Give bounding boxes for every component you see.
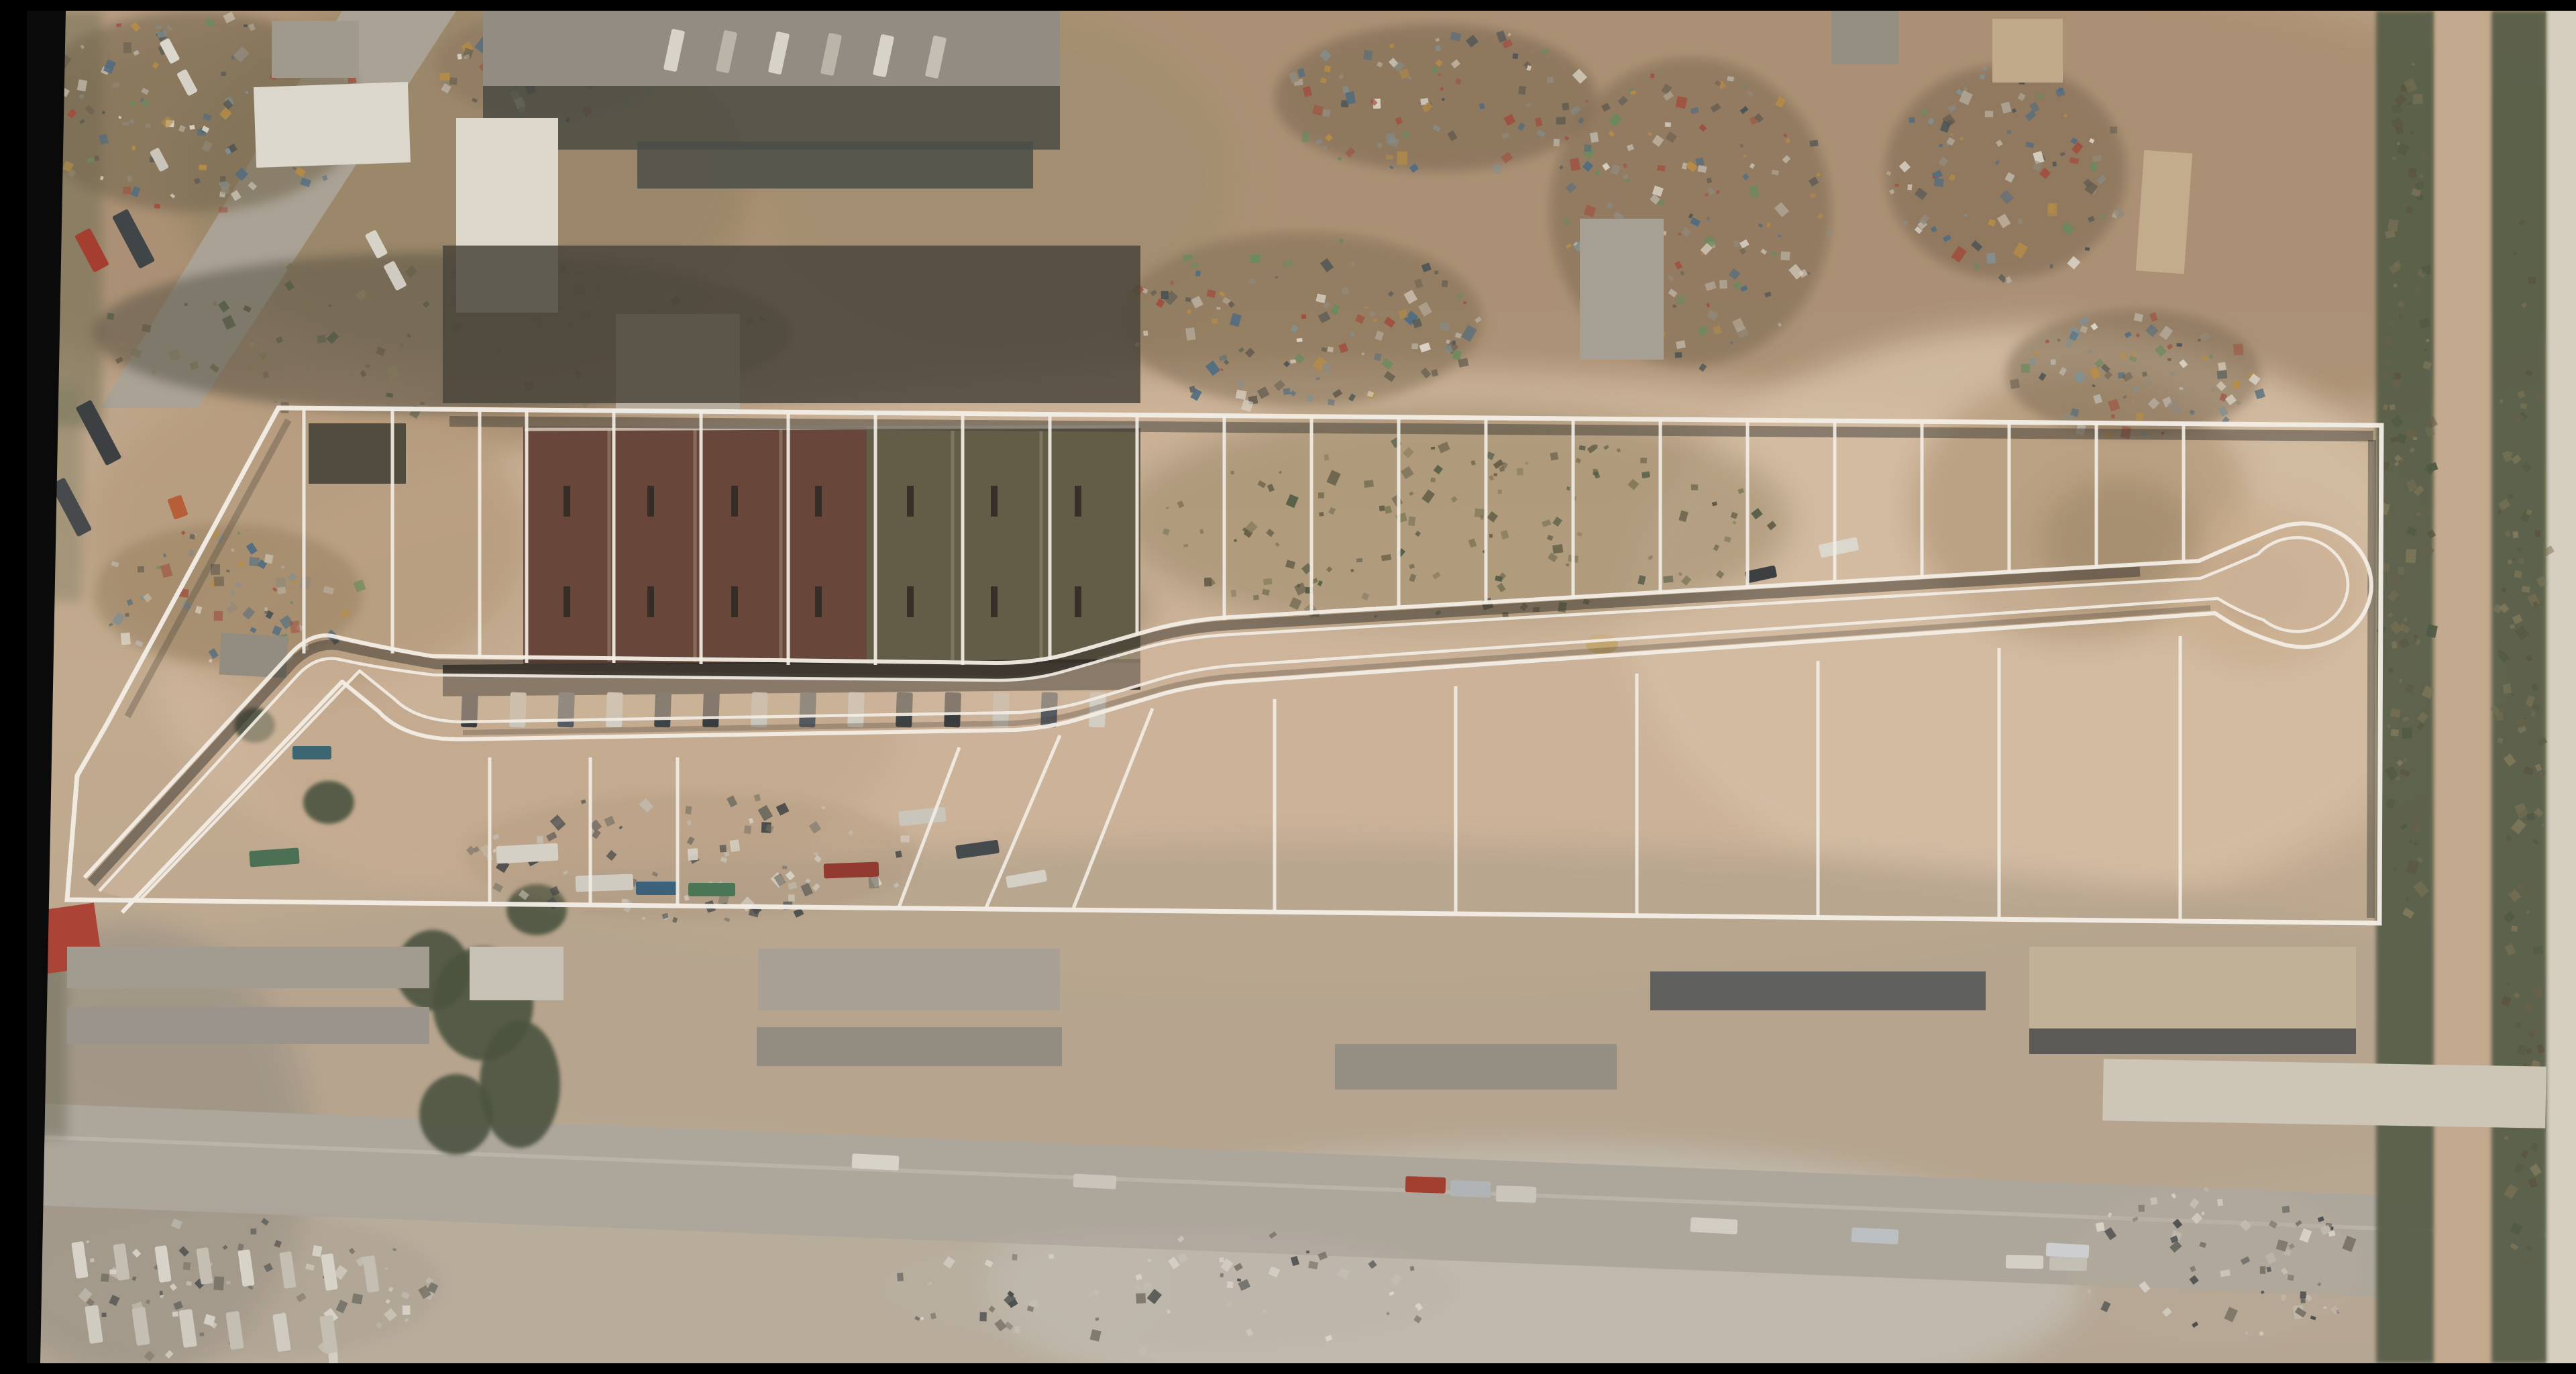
aerial-photo-canvas (27, 11, 2576, 1363)
frame-layer (27, 11, 2576, 1363)
haze-overlay (27, 11, 2576, 1363)
aerial-parcel-map (27, 11, 2576, 1363)
